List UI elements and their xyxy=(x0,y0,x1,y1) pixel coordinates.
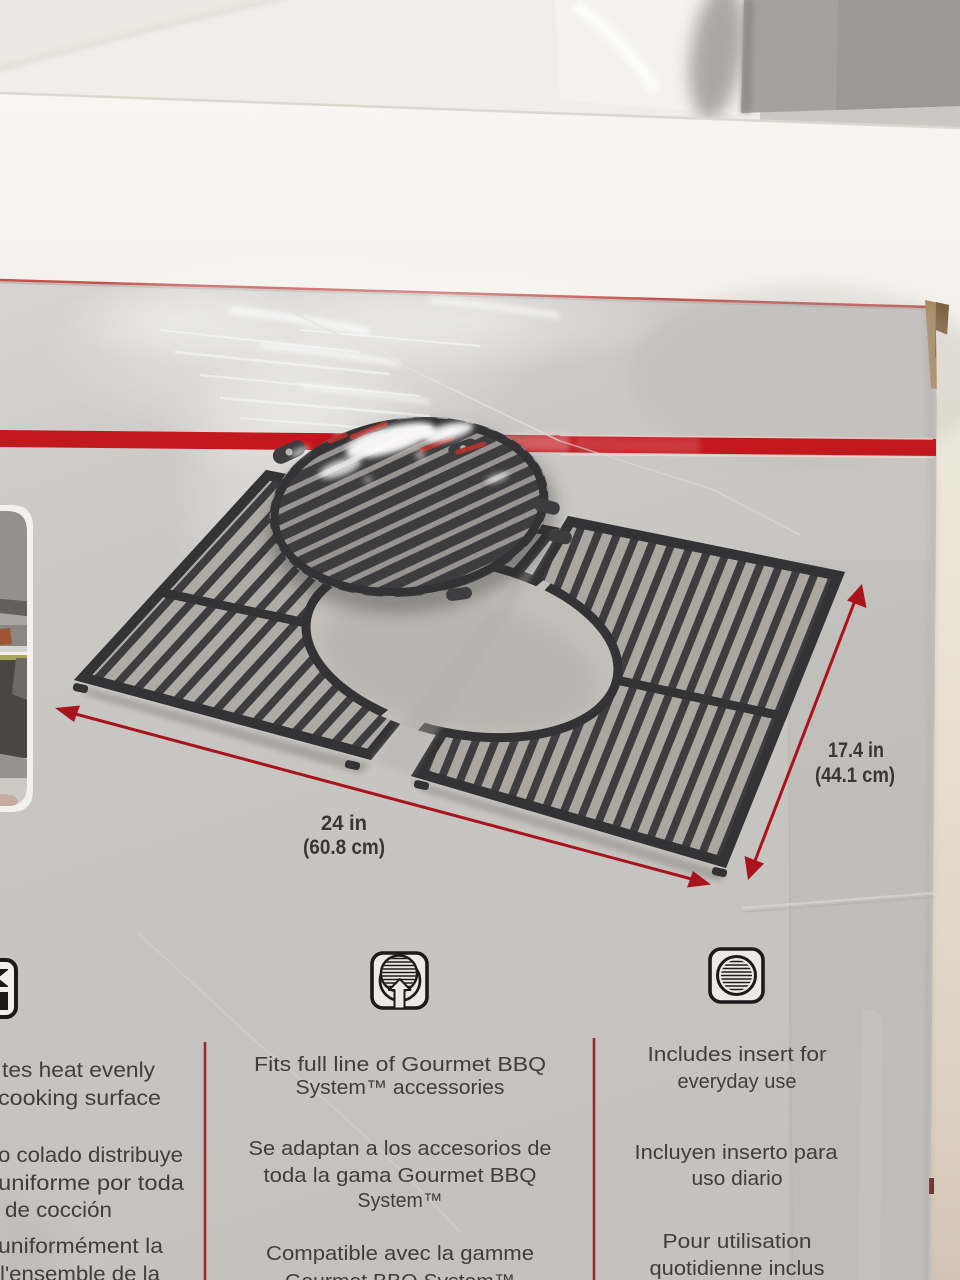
svg-text:Pour utilisation: Pour utilisation xyxy=(663,1231,812,1253)
svg-text:(44.1 cm): (44.1 cm) xyxy=(815,764,895,787)
svg-text:everyday use: everyday use xyxy=(678,1071,797,1093)
svg-text:Gourmet BBQ System™: Gourmet BBQ System™ xyxy=(285,1271,515,1280)
svg-text:cooking surface: cooking surface xyxy=(0,1087,161,1110)
svg-text:tes heat evenly: tes heat evenly xyxy=(2,1059,156,1082)
svg-text:l'ensemble de la: l'ensemble de la xyxy=(0,1263,160,1280)
svg-text:Includes insert for: Includes insert for xyxy=(648,1044,827,1066)
svg-text:o colado distribuye: o colado distribuye xyxy=(0,1144,183,1167)
svg-text:17.4 in: 17.4 in xyxy=(828,739,884,762)
svg-text:Se adaptan a los accesorios de: Se adaptan a los accesorios de xyxy=(249,1138,552,1160)
svg-text:Fits full line of Gourmet BBQ: Fits full line of Gourmet BBQ xyxy=(254,1054,546,1076)
svg-text:Incluyen inserto para: Incluyen inserto para xyxy=(635,1142,839,1164)
svg-text:System™ accessories: System™ accessories xyxy=(296,1077,505,1099)
svg-text:uso diario: uso diario xyxy=(692,1168,783,1190)
svg-text:24 in: 24 in xyxy=(321,812,367,835)
svg-text:uniformément la: uniformément la xyxy=(0,1235,163,1258)
svg-text:uniforme por toda: uniforme por toda xyxy=(0,1172,184,1195)
svg-text:de cocción: de cocción xyxy=(5,1199,112,1222)
svg-text:(60.8 cm): (60.8 cm) xyxy=(303,836,385,859)
svg-text:quotidienne inclus: quotidienne inclus xyxy=(650,1258,825,1280)
svg-text:System™: System™ xyxy=(358,1190,443,1212)
svg-text:toda la gama Gourmet BBQ: toda la gama Gourmet BBQ xyxy=(264,1165,537,1187)
svg-text:Compatible avec la gamme: Compatible avec la gamme xyxy=(266,1243,534,1265)
